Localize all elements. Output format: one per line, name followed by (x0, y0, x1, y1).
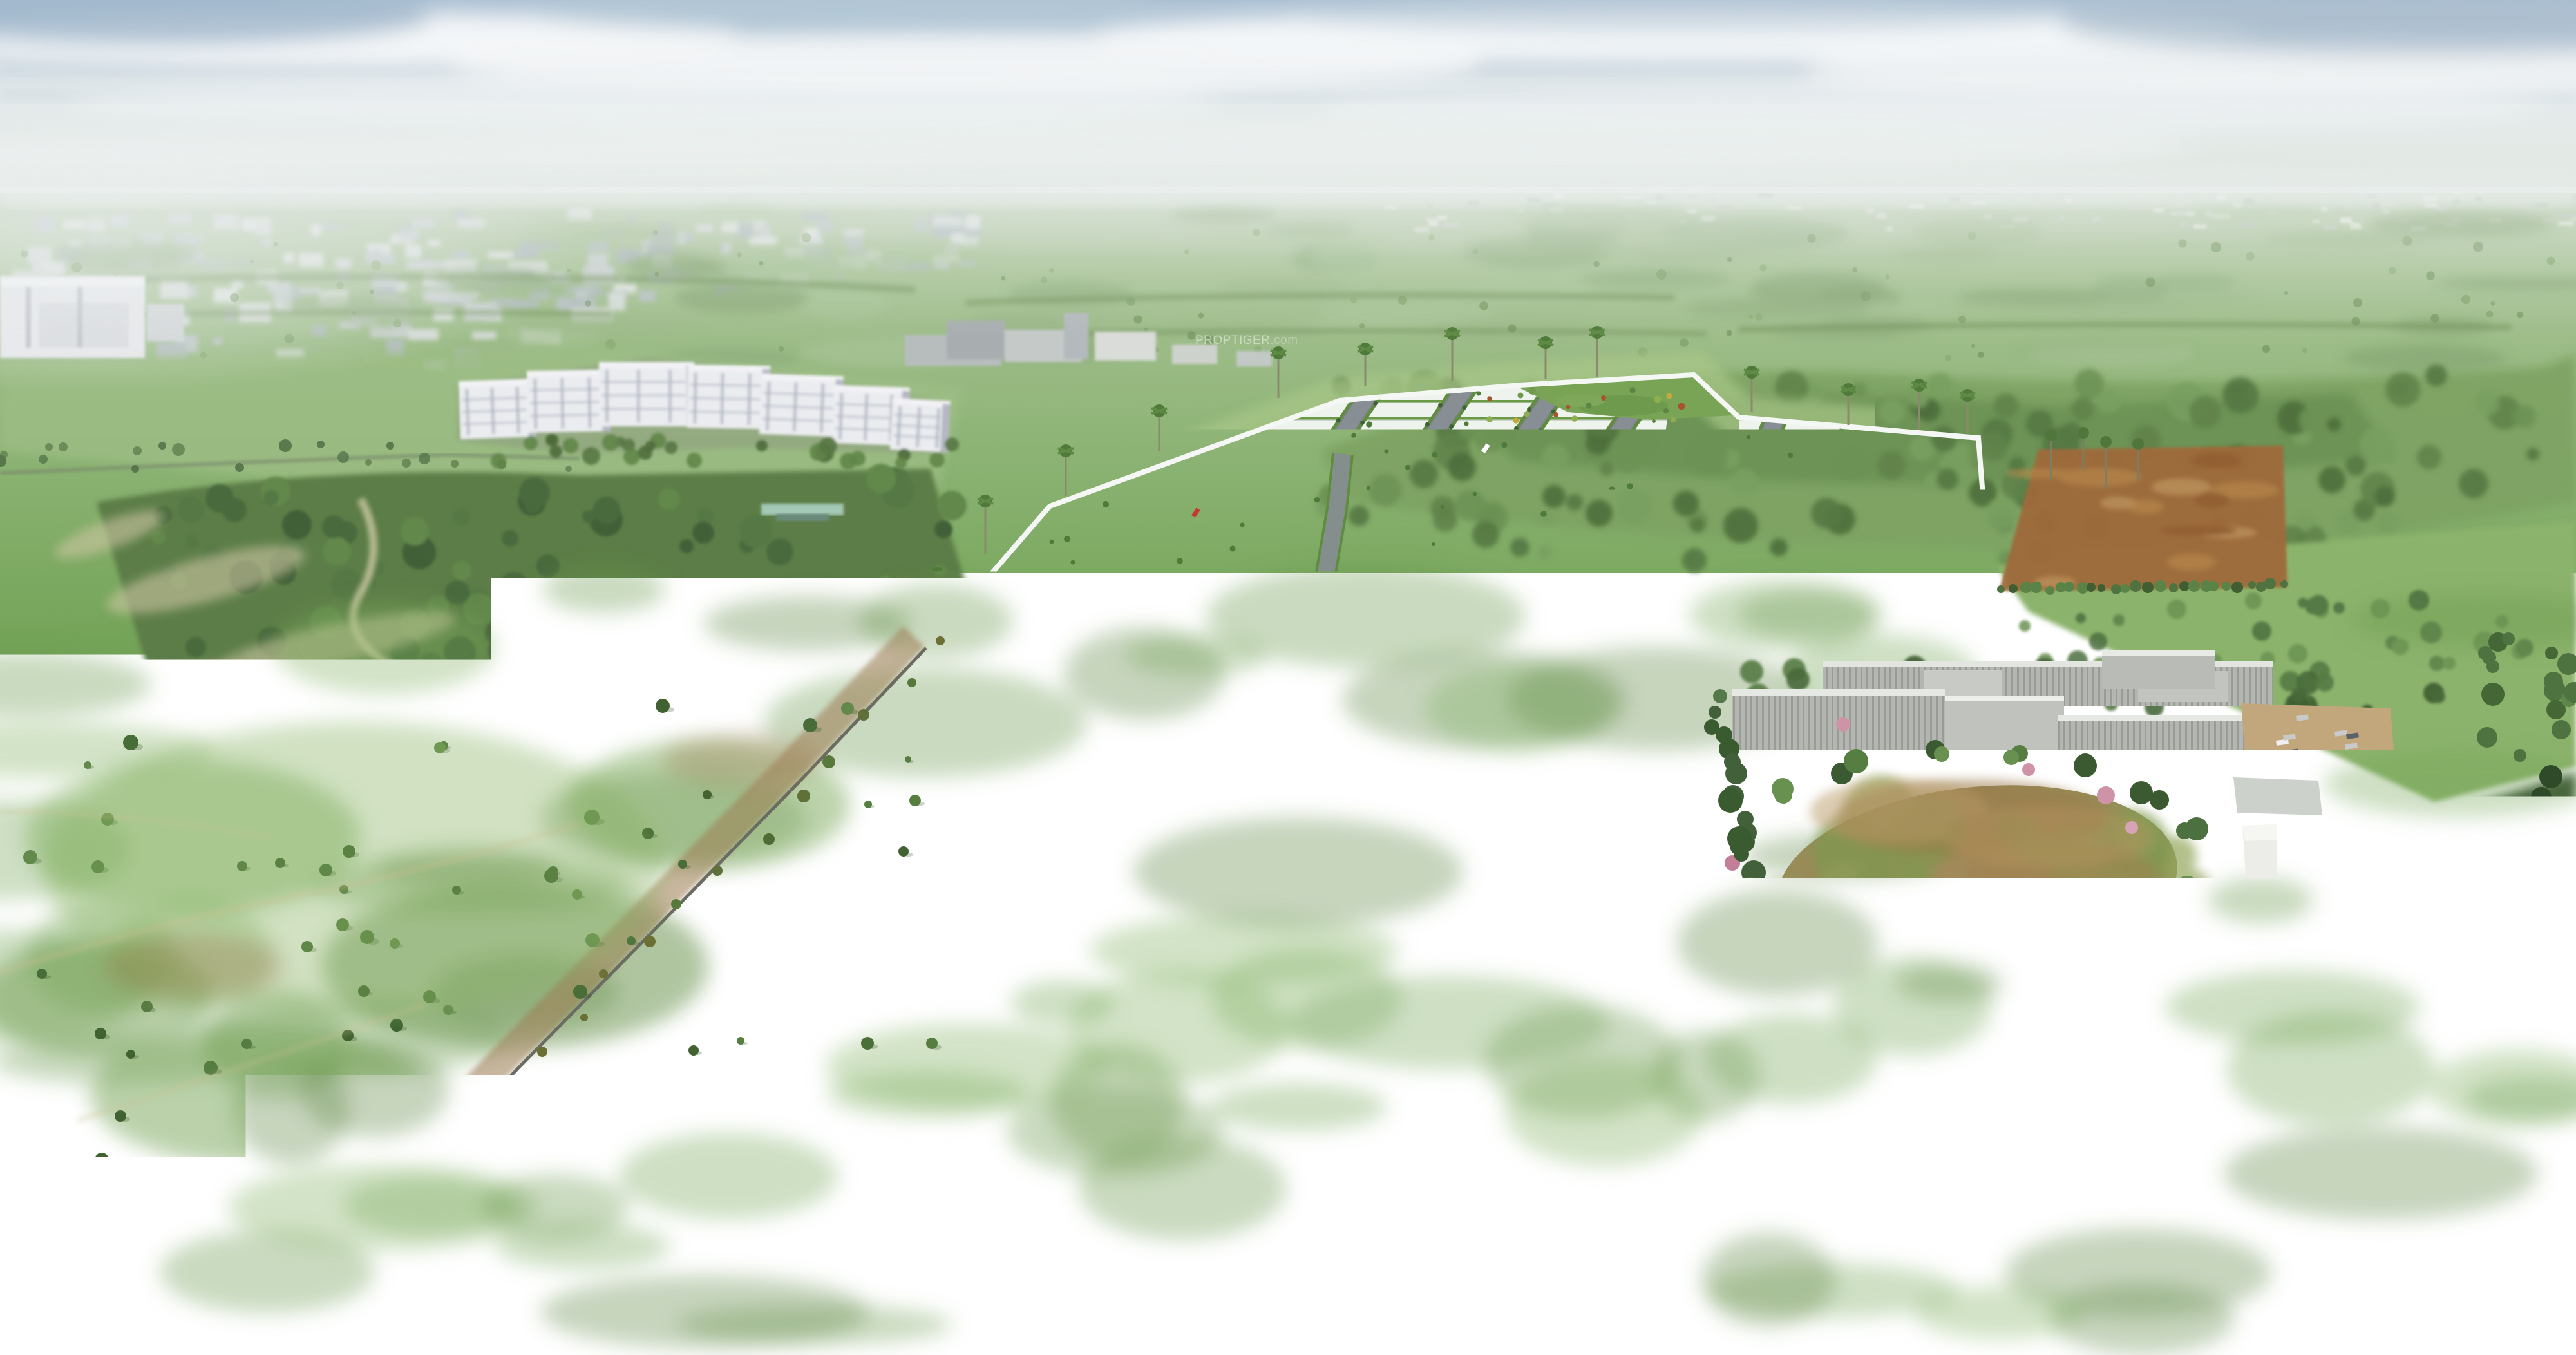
svg-text:PROPTIGER.com: PROPTIGER.com (1195, 334, 1298, 347)
